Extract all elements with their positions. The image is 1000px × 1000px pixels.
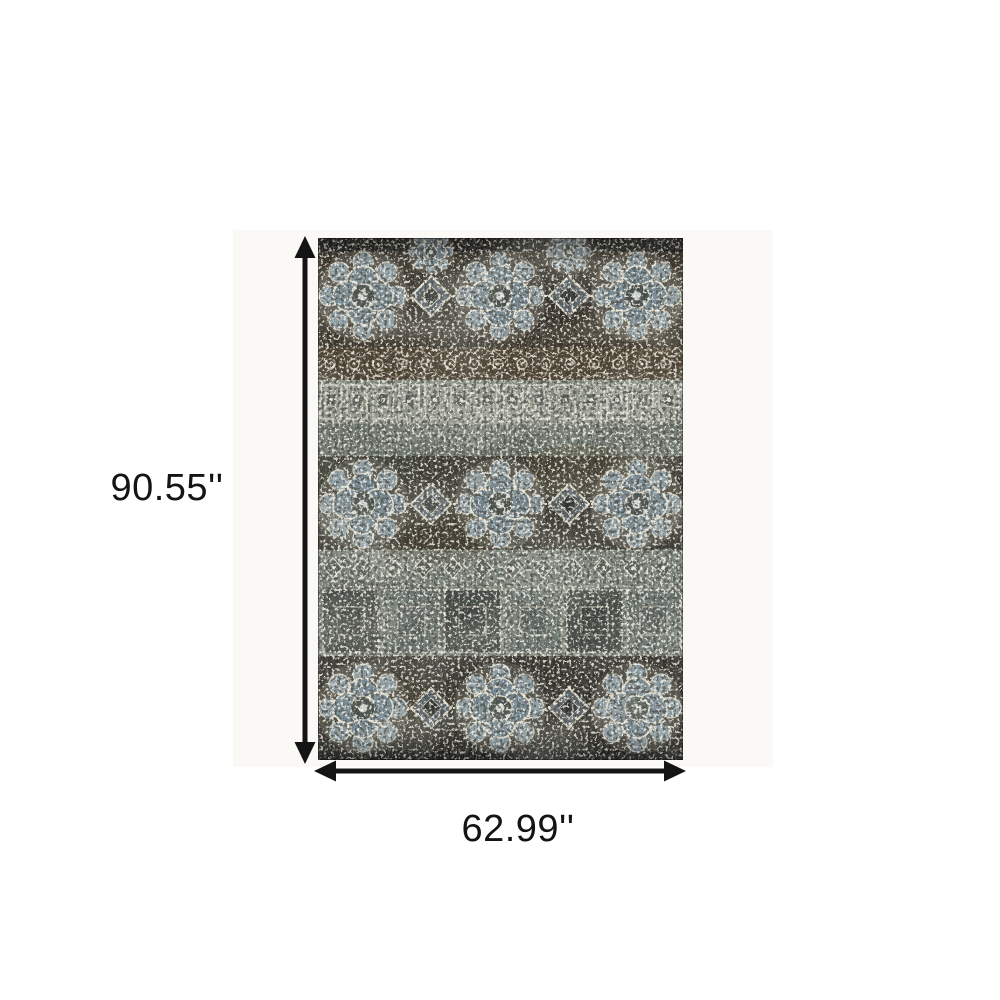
rug-image [318,238,683,760]
height-dimension-arrow [292,236,318,764]
width-dimension-label: 62.99'' [461,810,574,848]
width-dimension-arrow [314,758,686,784]
arrowhead-left-icon [314,761,336,782]
arrowhead-right-icon [664,761,686,782]
arrowhead-down-icon [295,742,316,764]
rug-pattern-svg [318,238,683,760]
product-dimension-diagram: 90.55'' 62.99'' [0,0,1000,1000]
height-dimension-label: 90.55'' [110,469,223,507]
arrowhead-up-icon [295,236,316,258]
